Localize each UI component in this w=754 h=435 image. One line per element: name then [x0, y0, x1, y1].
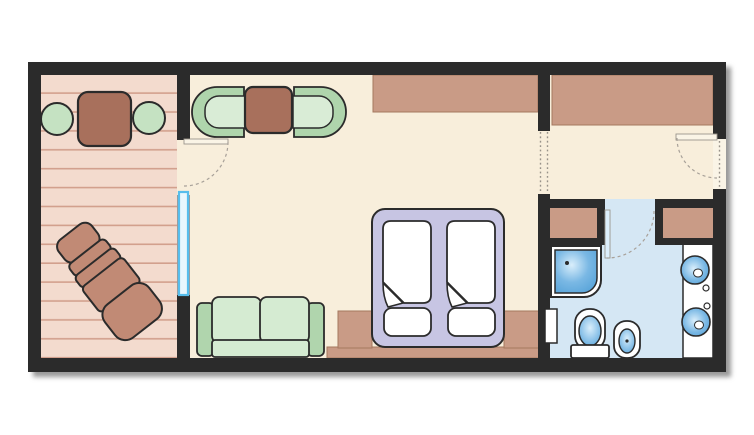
patio-table: [78, 92, 131, 146]
hall-closet: [552, 75, 713, 125]
shower-drain: [565, 261, 569, 265]
toilet-bowl: [579, 316, 601, 346]
shower: [551, 246, 601, 297]
toilet-base: [571, 345, 609, 358]
wall-hall-bath-right: [655, 199, 713, 208]
armchair-right-seat: [293, 96, 333, 128]
wall-right-upper: [713, 62, 726, 139]
shower-basin: [555, 250, 597, 293]
sofa-back: [212, 340, 309, 357]
pillow-left: [384, 308, 431, 336]
wall-divider-upper: [538, 75, 550, 131]
wall-bathcabinet-bar-right: [655, 238, 713, 245]
vanity-accessory-top: [703, 285, 709, 291]
floor-plan: [0, 0, 754, 435]
bath-wall-niche: [545, 309, 557, 343]
wall-right-lower: [713, 189, 726, 372]
washbasin-top-drain: [694, 269, 703, 277]
bath-cabinet-right: [663, 208, 713, 238]
balcony-door-leaf: [184, 139, 228, 144]
double-bed: [372, 209, 504, 347]
floor-plan-canvas: [0, 0, 754, 435]
wall-balcony-upper: [177, 75, 190, 140]
sitting-group: [192, 87, 346, 137]
sofa: [197, 297, 324, 357]
pillow-right: [448, 308, 495, 336]
nightstand-left: [338, 311, 372, 348]
patio-chair-left: [41, 103, 73, 135]
balcony-window: [179, 192, 188, 295]
wall-left: [28, 62, 41, 372]
sofa-cushion-left: [212, 297, 261, 343]
bathroom-door-leaf: [605, 210, 610, 258]
balcony-door-gap-floor: [177, 140, 190, 195]
wall-top: [28, 62, 726, 75]
headboard-ledge: [327, 347, 541, 358]
coffee-table: [245, 87, 292, 133]
wall-hall-bath-left: [550, 199, 605, 208]
patio-chair-right: [133, 102, 165, 134]
wall-balcony-lower: [177, 295, 190, 358]
vanity: [681, 243, 713, 358]
passage-gap-floor: [538, 131, 550, 194]
armchair-left-seat: [205, 96, 245, 128]
wall-bathcabinet-bar-left: [550, 238, 605, 245]
wardrobe: [373, 75, 538, 112]
washbasin-bottom-drain: [695, 321, 704, 329]
wall-bottom: [28, 358, 726, 372]
bath-cabinet-left: [550, 208, 597, 238]
nightstand-right: [504, 311, 541, 348]
toilet: [571, 309, 609, 358]
vanity-accessory-bottom: [704, 303, 710, 309]
bidet-drain: [625, 339, 628, 342]
sofa-cushion-right: [260, 297, 309, 343]
entry-door-leaf: [676, 134, 717, 140]
bidet: [614, 321, 640, 358]
